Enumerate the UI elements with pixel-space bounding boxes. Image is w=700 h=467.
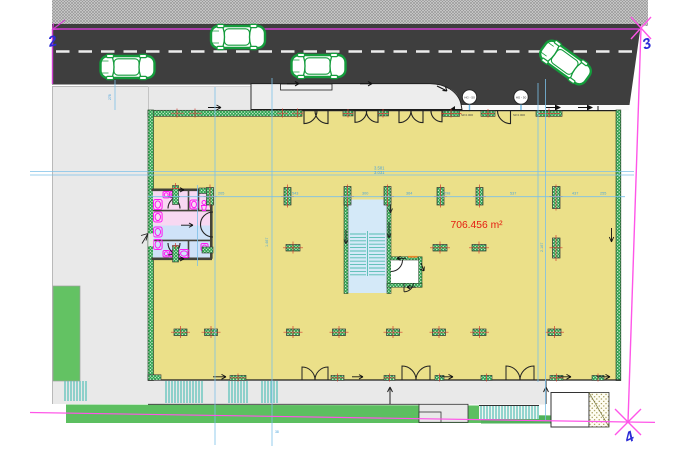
svg-text:706.456 m²: 706.456 m² [451,220,504,231]
svg-text:1.467: 1.467 [265,237,269,247]
svg-text:S# 0.000: S# 0.000 [461,113,473,117]
svg-text:364: 364 [406,192,412,196]
svg-text:38: 38 [275,430,279,434]
svg-text:S# 0.000: S# 0.000 [513,113,525,117]
svg-text:3.031: 3.031 [374,170,385,175]
svg-text:HG - 50: HG - 50 [516,96,527,100]
svg-text:437: 437 [572,192,578,196]
svg-text:543: 543 [292,192,298,196]
svg-text:537: 537 [510,192,516,196]
svg-text:298: 298 [444,192,450,196]
svg-text:255: 255 [600,192,606,196]
svg-text:2.167: 2.167 [540,242,544,252]
svg-text:278: 278 [108,94,112,100]
svg-text:HG - 50: HG - 50 [464,96,475,100]
svg-text:300: 300 [362,192,368,196]
svg-text:205: 205 [218,192,224,196]
